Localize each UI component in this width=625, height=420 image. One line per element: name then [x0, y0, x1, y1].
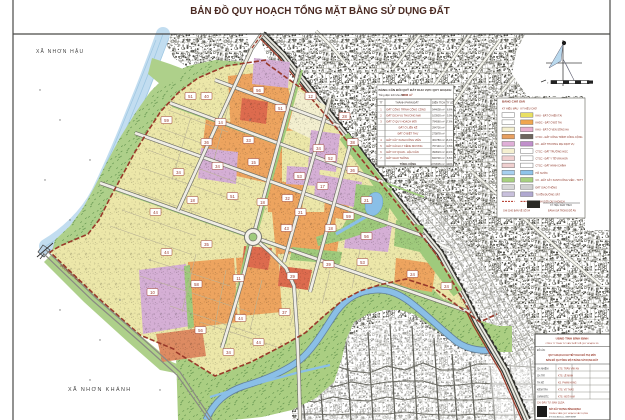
svg-text:5,9%: 5,9%	[447, 114, 453, 117]
svg-text:GHI CHÚ BẢN VẼ SỐ 04: GHI CHÚ BẢN VẼ SỐ 04	[503, 210, 531, 213]
svg-text:34: 34	[316, 146, 321, 151]
svg-text:KTS. LÊ MINH: KTS. LÊ MINH	[558, 374, 573, 377]
svg-text:11: 11	[236, 276, 241, 281]
svg-text:GIÁM ĐỐC: GIÁM ĐỐC	[537, 395, 549, 398]
svg-text:28: 28	[342, 114, 347, 119]
svg-text:THÀNH PHẦN ĐẤT: THÀNH PHẦN ĐẤT	[395, 101, 419, 105]
svg-text:32: 32	[285, 196, 290, 201]
svg-text:53: 53	[297, 174, 302, 179]
svg-text:HỒ NƯỚC: HỒ NƯỚC	[536, 172, 549, 175]
svg-text:33: 33	[246, 138, 251, 143]
svg-text:BẢN ĐỒ QH TỔNG MẶT BẰNG SỬ DỤN: BẢN ĐỒ QH TỔNG MẶT BẰNG SỬ DỤNG ĐẤT	[546, 359, 599, 362]
svg-text:TRUNG TÂM QUY HOẠCH XÂY DỰNG: TRUNG TÂM QUY HOẠCH XÂY DỰNG	[549, 412, 588, 415]
svg-text:29: 29	[290, 274, 295, 279]
svg-text:51: 51	[188, 94, 193, 99]
svg-text:58: 58	[194, 282, 199, 287]
svg-text:ĐỒ ÁN:: ĐỒ ÁN:	[537, 349, 546, 352]
svg-text:KÝ HIỆU KÈM THEO: KÝ HIỆU KÈM THEO	[550, 204, 572, 207]
svg-text:40: 40	[204, 94, 209, 99]
svg-text:17: 17	[320, 184, 325, 189]
svg-text:18: 18	[260, 200, 265, 205]
svg-text:CH.NHIỆM: CH.NHIỆM	[537, 367, 548, 370]
svg-text:CTCC - ĐẤT HÀNH CHÍNH: CTCC - ĐẤT HÀNH CHÍNH	[536, 165, 567, 168]
svg-text:34: 34	[176, 170, 181, 175]
svg-text:CH.TRÌ: CH.TRÌ	[537, 374, 545, 377]
svg-text:100%: 100%	[446, 163, 453, 166]
svg-text:8,6%: 8,6%	[447, 108, 453, 111]
svg-text:CTCC - ĐẤT CÔNG TRÌNH CÔNG CỘN: CTCC - ĐẤT CÔNG TRÌNH CÔNG CỘNG	[536, 136, 583, 139]
svg-text:43: 43	[284, 226, 289, 231]
svg-text:18: 18	[190, 198, 195, 203]
svg-text:KS. PHẠM HÙNG: KS. PHẠM HÙNG	[558, 381, 577, 384]
svg-text:36: 36	[350, 168, 355, 173]
svg-text:KHU - ĐẤT Ở HIỆN TẠI: KHU - ĐẤT Ở HIỆN TẠI	[536, 114, 563, 117]
svg-text:393623 m²: 393623 m²	[432, 150, 445, 154]
svg-text:BẢN ĐỒ QUY HOẠCH TỔNG MẶT BẰNG: BẢN ĐỒ QUY HOẠCH TỔNG MẶT BẰNG SỬ DỤNG Đ…	[190, 5, 449, 17]
svg-text:12: 12	[308, 94, 313, 99]
svg-text:39: 39	[326, 262, 331, 267]
svg-text:KTS. TRẦN VĂN AN: KTS. TRẦN VĂN AN	[558, 367, 579, 370]
svg-text:KÝ HIỆU CHỮ: KÝ HIỆU CHỮ	[521, 108, 538, 111]
svg-text:24: 24	[410, 272, 415, 277]
svg-text:CTCC - ĐẤT Y TẾ VĂN HOÁ: CTCC - ĐẤT Y TẾ VĂN HOÁ	[536, 158, 569, 161]
svg-text:UBND TỈNH BÌNH ĐỊNH: UBND TỈNH BÌNH ĐỊNH	[556, 336, 589, 341]
svg-text:56: 56	[198, 328, 203, 333]
svg-text:59: 59	[346, 214, 351, 219]
svg-text:53: 53	[360, 260, 365, 265]
svg-text:767140 m²: 767140 m²	[432, 144, 445, 148]
svg-text:BẢNG CÂN ĐỐI QUỸ ĐẤT KHU VỰC Q: BẢNG CÂN ĐỐI QUỸ ĐẤT KHU VỰC QUY HOẠCH	[379, 87, 453, 92]
svg-text:294726 m²: 294726 m²	[432, 126, 445, 130]
svg-text:56: 56	[256, 88, 261, 93]
svg-text:34: 34	[226, 350, 231, 355]
svg-text:24: 24	[444, 284, 449, 289]
svg-text:56: 56	[364, 234, 369, 239]
svg-text:CX - ĐẤT CÂY XANH CÔNG VIÊN -: CX - ĐẤT CÂY XANH CÔNG VIÊN - TDTT	[536, 179, 584, 182]
svg-text:KTS. NGÔ NAM: KTS. NGÔ NAM	[558, 395, 575, 398]
svg-text:51: 51	[230, 194, 235, 199]
svg-text:DV - ĐẤT THƯƠNG MẠI DỊCH VỤ: DV - ĐẤT THƯƠNG MẠI DỊCH VỤ	[536, 143, 575, 146]
svg-text:TỶ LỆ: TỶ LỆ	[446, 102, 453, 105]
svg-text:103903 m²: 103903 m²	[432, 113, 445, 117]
svg-text:XÃ NHƠN KHÁNH: XÃ NHƠN KHÁNH	[68, 386, 132, 393]
svg-text:44: 44	[164, 250, 169, 255]
svg-text:44: 44	[153, 210, 158, 215]
svg-text:17,6%: 17,6%	[446, 121, 454, 124]
svg-text:14: 14	[218, 120, 223, 125]
svg-text:15: 15	[251, 160, 256, 165]
svg-text:KIỂM TRA: KIỂM TRA	[537, 388, 548, 391]
svg-text:304783 m²: 304783 m²	[432, 138, 445, 142]
svg-text:51: 51	[278, 106, 283, 111]
svg-text:794560 m²: 794560 m²	[432, 120, 445, 124]
svg-text:44: 44	[238, 316, 243, 321]
svg-text:544638 m²: 544638 m²	[432, 107, 445, 111]
svg-text:37: 37	[282, 310, 287, 315]
svg-text:52: 52	[328, 156, 333, 161]
svg-text:CÔNG TY TNHH TƯ VẤN THIẾT KẾ Q: CÔNG TY TNHH TƯ VẤN THIẾT KẾ QUY HOẠCH X…	[545, 342, 599, 345]
svg-text:KHDC - ĐẤT Ở ĐÔ THỊ: KHDC - ĐẤT Ở ĐÔ THỊ	[536, 122, 563, 125]
svg-text:KHU - ĐẤT Ở VEN SÔNG HẠ: KHU - ĐẤT Ở VEN SÔNG HẠ	[536, 129, 570, 132]
svg-text:275878 m²: 275878 m²	[432, 132, 445, 136]
svg-text:QUY HOẠCH CHI TIẾT KHU ĐÔ THỊ: QUY HOẠCH CHI TIẾT KHU ĐÔ THỊ MỚI	[548, 354, 596, 357]
svg-text:TUYẾN ĐƯỜNG SẮT: TUYẾN ĐƯỜNG SẮT	[536, 194, 561, 197]
svg-text:36: 36	[204, 140, 209, 145]
svg-text:KÝ HIỆU MÀU: KÝ HIỆU MÀU	[502, 108, 518, 111]
svg-text:10: 10	[150, 290, 155, 295]
svg-text:8,6%: 8,6%	[447, 157, 453, 160]
svg-text:ĐẤT GIAO THÔNG: ĐẤT GIAO THÔNG	[536, 186, 558, 189]
svg-text:CTCC - ĐẤT TRƯỜNG HỌC: CTCC - ĐẤT TRƯỜNG HỌC	[536, 150, 569, 153]
svg-text:BẢNG CHÚ GIẢI: BẢNG CHÚ GIẢI	[502, 99, 525, 104]
svg-text:TT: TT	[379, 101, 383, 105]
svg-text:CH. ĐẦU TƯ: BAN QLDA: CH. ĐẦU TƯ: BAN QLDA	[537, 402, 565, 405]
svg-text:ĐT: 056.3822xxx - BÌNH ĐỊNH: ĐT: 056.3822xxx - BÌNH ĐỊNH	[549, 416, 576, 419]
svg-text:10,1%: 10,1%	[446, 151, 454, 154]
svg-text:SỞ XÂY DỰNG BÌNH ĐỊNH: SỞ XÂY DỰNG BÌNH ĐỊNH	[549, 408, 581, 411]
svg-text:21: 21	[364, 198, 369, 203]
svg-text:35: 35	[204, 242, 209, 247]
svg-text:34: 34	[215, 164, 220, 169]
svg-text:21: 21	[298, 210, 303, 215]
svg-text:9,6%: 9,6%	[447, 145, 453, 148]
svg-text:44: 44	[256, 340, 261, 345]
svg-text:18: 18	[328, 226, 333, 231]
svg-text:16,1%: 16,1%	[446, 139, 454, 142]
svg-text:TH.KẾ: TH.KẾ	[537, 381, 544, 384]
svg-text:59: 59	[164, 118, 169, 123]
svg-text:1073605 m²: 1073605 m²	[431, 162, 445, 166]
svg-text:KTS. VŨ THẢO: KTS. VŨ THẢO	[558, 388, 574, 391]
svg-text:ĐÁNH GIÁ TRONG ĐỒ ÁN: ĐÁNH GIÁ TRONG ĐỒ ÁN	[548, 210, 576, 213]
svg-text:7286 m²: 7286 m²	[402, 93, 412, 97]
svg-text:38: 38	[350, 140, 355, 145]
svg-text:XÃ NHƠN HẬU: XÃ NHƠN HẬU	[36, 48, 84, 55]
svg-text:840730 m²: 840730 m²	[432, 156, 445, 160]
